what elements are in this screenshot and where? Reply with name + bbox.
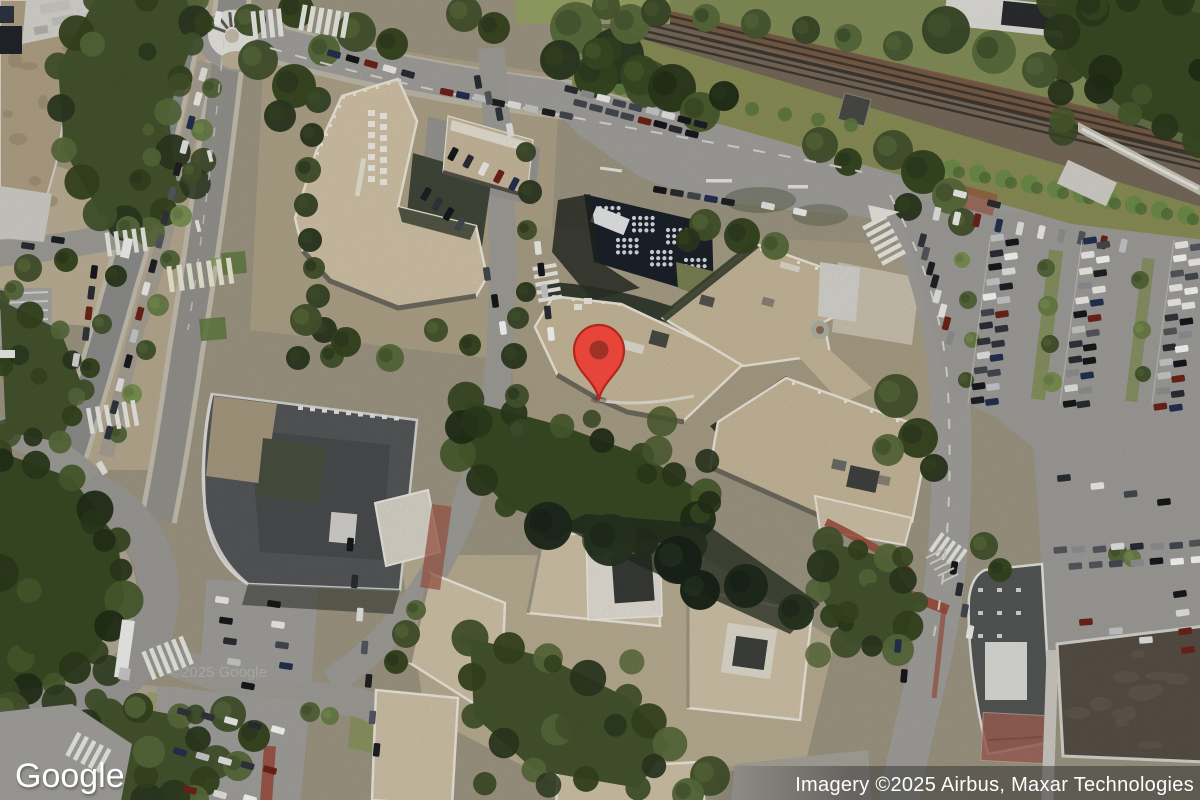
svg-text:Imagery ©2025 Airbus, Maxar Te: Imagery ©2025 Airbus, Maxar Technologies (795, 774, 1194, 796)
svg-text:Google: Google (15, 757, 125, 795)
